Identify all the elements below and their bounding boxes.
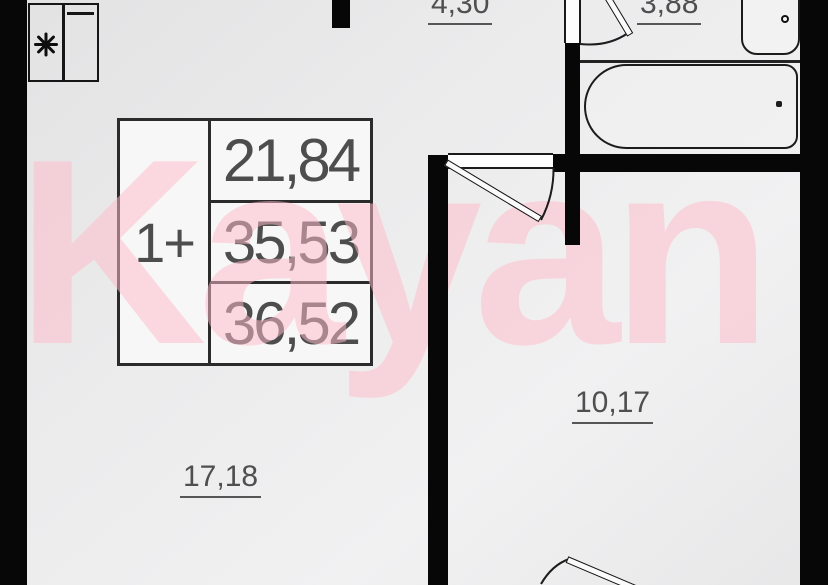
bedroom-area-label: 10,17 <box>572 386 653 424</box>
unit-info-table: 1+ 21,84 35,53 36,52 <box>117 118 373 366</box>
apartment-floor-plan: 1+ 21,84 35,53 36,52 Kayan 4,30 3,88 17,… <box>0 0 828 585</box>
bedroom-door-arc <box>541 168 554 220</box>
sink-faucet-dot <box>781 15 789 23</box>
bathroom-door-opening <box>564 0 581 43</box>
bathroom-door-arc <box>580 33 628 45</box>
left-outer-wall <box>0 0 27 585</box>
area-row-living: 21,84 <box>211 121 370 200</box>
hallway-area-label: 4,30 <box>428 0 492 25</box>
fridge-snowflake-icon <box>34 32 58 56</box>
bathroom-area-label: 3,88 <box>637 0 701 25</box>
right-outer-wall <box>800 0 828 585</box>
bathroom-door-leaf <box>601 0 633 37</box>
hallway-wall-stub <box>332 0 350 28</box>
area-row-useful: 35,53 <box>211 200 370 282</box>
bathroom-south-wall <box>553 154 828 172</box>
bathtub <box>584 64 798 149</box>
living-room-area-label: 17,18 <box>180 460 261 498</box>
counter-dash <box>67 12 94 15</box>
fridge-box-divider <box>62 3 65 82</box>
bedroom-partition-wall <box>428 155 448 585</box>
bathtub-drain-dot <box>776 101 782 107</box>
wet-zone-vertical-wall <box>565 42 580 245</box>
balcony-door-leaf <box>566 556 641 585</box>
sink <box>741 0 800 55</box>
unit-type-label: 1+ <box>120 121 211 363</box>
area-row-total: 36,52 <box>211 281 370 363</box>
bedroom-door-opening <box>448 153 553 169</box>
unit-area-column: 21,84 35,53 36,52 <box>211 121 370 363</box>
bathroom-partition-line <box>578 60 802 63</box>
